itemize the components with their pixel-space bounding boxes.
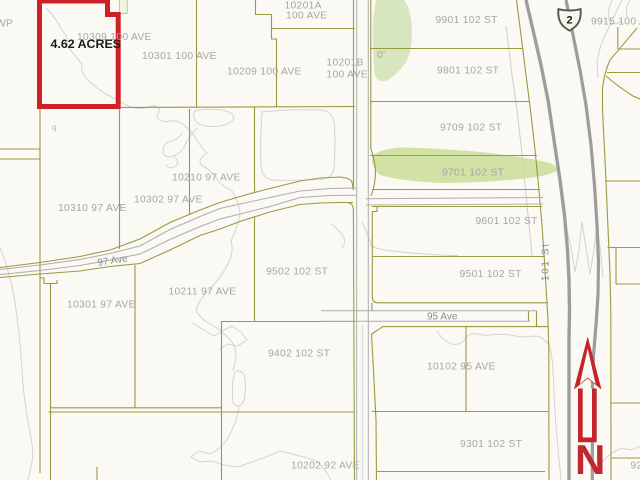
svg-text:9301 102 ST: 9301 102 ST: [460, 439, 523, 450]
svg-text:10211 97 AVE: 10211 97 AVE: [169, 287, 237, 298]
svg-text:100 AVE: 100 AVE: [286, 11, 327, 22]
svg-text:920: 920: [631, 461, 640, 472]
svg-text:4.62 ACRES: 4.62 ACRES: [51, 37, 121, 51]
svg-text:0': 0': [377, 50, 385, 61]
svg-text:9701 102 ST: 9701 102 ST: [442, 168, 505, 179]
svg-text:9915 100 AVE: 9915 100 AVE: [591, 17, 640, 28]
svg-text:9502 102 ST: 9502 102 ST: [266, 267, 329, 278]
svg-text:10209 100 AVE: 10209 100 AVE: [227, 67, 302, 78]
svg-text:95 Ave: 95 Ave: [427, 312, 458, 323]
svg-text:WP: WP: [0, 19, 13, 30]
svg-text:2: 2: [566, 15, 572, 27]
svg-text:100 AVE: 100 AVE: [327, 70, 368, 81]
svg-text:10201B: 10201B: [327, 58, 364, 69]
svg-text:9901 102 ST: 9901 102 ST: [436, 15, 499, 26]
svg-text:9601 102 ST: 9601 102 ST: [476, 216, 539, 227]
svg-text:10301 97 AVE: 10301 97 AVE: [67, 300, 136, 311]
svg-text:q: q: [52, 123, 56, 132]
svg-text:9709 102 ST: 9709 102 ST: [440, 123, 503, 134]
svg-text:10301 100 AVE: 10301 100 AVE: [142, 51, 217, 62]
svg-text:9501 102 ST: 9501 102 ST: [460, 269, 523, 280]
svg-text:10210 97 AVE: 10210 97 AVE: [172, 173, 241, 184]
svg-text:9801 102 ST: 9801 102 ST: [437, 66, 500, 77]
svg-text:9402 102 ST: 9402 102 ST: [268, 349, 331, 360]
svg-text:10302 97 AVE: 10302 97 AVE: [134, 195, 203, 206]
svg-text:10310 97 AVE: 10310 97 AVE: [58, 203, 127, 214]
svg-text:101 St: 101 St: [541, 242, 552, 281]
svg-text:N: N: [575, 436, 605, 480]
svg-text:10102 95 AVE: 10102 95 AVE: [427, 362, 496, 373]
svg-text:10202 92 AVE: 10202 92 AVE: [291, 461, 360, 472]
